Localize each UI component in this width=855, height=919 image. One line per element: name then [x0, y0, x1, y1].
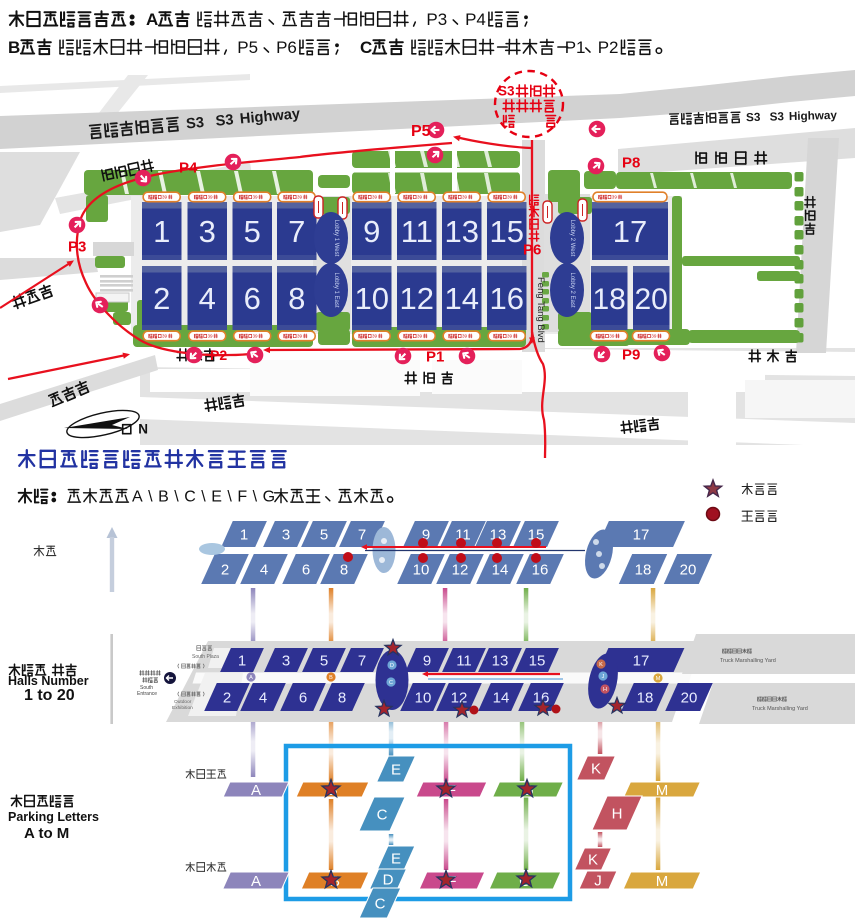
- svg-text:J: J: [602, 674, 605, 680]
- svg-text:10: 10: [413, 561, 430, 578]
- svg-text:39: 39: [297, 334, 303, 339]
- svg-text:P1: P1: [565, 38, 586, 57]
- svg-text:11: 11: [401, 214, 433, 249]
- svg-text:17: 17: [613, 214, 647, 249]
- svg-text:39: 39: [612, 195, 618, 200]
- svg-text:18: 18: [637, 689, 654, 706]
- svg-text:M: M: [656, 782, 669, 799]
- svg-text:Lobby 1 West: Lobby 1 West: [333, 220, 339, 257]
- svg-text:39: 39: [507, 195, 513, 200]
- svg-text:S3: S3: [215, 112, 234, 130]
- svg-text:3: 3: [282, 652, 290, 669]
- svg-text:P3: P3: [68, 238, 86, 255]
- svg-text:18: 18: [635, 561, 652, 578]
- svg-text:P1: P1: [426, 348, 444, 365]
- svg-text:3: 3: [282, 526, 290, 543]
- svg-text:2: 2: [223, 689, 231, 706]
- svg-text:1: 1: [240, 526, 248, 543]
- svg-text:Truck Marshalling Yard: Truck Marshalling Yard: [720, 658, 776, 664]
- svg-text:S3: S3: [746, 111, 761, 124]
- svg-text:Entrance: Entrance: [137, 691, 157, 697]
- svg-text:6: 6: [299, 689, 307, 706]
- svg-text:39: 39: [372, 195, 378, 200]
- svg-text:12: 12: [452, 561, 469, 578]
- svg-text:17: 17: [633, 652, 650, 669]
- svg-text:39: 39: [208, 334, 214, 339]
- svg-text:9: 9: [423, 652, 431, 669]
- svg-text:39: 39: [253, 195, 259, 200]
- svg-text:16: 16: [532, 561, 549, 578]
- svg-text:P8: P8: [622, 154, 640, 171]
- svg-text:39: 39: [372, 334, 378, 339]
- svg-text:S3: S3: [498, 84, 515, 99]
- svg-text:20: 20: [635, 283, 668, 316]
- svg-text:A: A: [146, 10, 158, 29]
- svg-text:B: B: [329, 675, 333, 681]
- svg-text:Parking Letters: Parking Letters: [8, 810, 99, 824]
- svg-text:11: 11: [456, 652, 472, 669]
- svg-text:2: 2: [221, 561, 229, 578]
- svg-text:39: 39: [462, 195, 468, 200]
- svg-text:39: 39: [507, 334, 513, 339]
- svg-text:6: 6: [302, 561, 310, 578]
- svg-text:5: 5: [244, 214, 261, 249]
- svg-text:K: K: [591, 760, 601, 777]
- svg-text:P6: P6: [523, 241, 541, 258]
- svg-text:10: 10: [355, 281, 389, 316]
- svg-text:39: 39: [609, 334, 615, 339]
- svg-text:P4: P4: [179, 159, 198, 176]
- svg-text:D: D: [390, 663, 394, 669]
- svg-text:7: 7: [358, 526, 366, 543]
- svg-text:14: 14: [445, 281, 479, 316]
- svg-text:South Plaza: South Plaza: [192, 654, 219, 660]
- svg-text:15: 15: [529, 652, 546, 669]
- svg-text:39: 39: [417, 195, 423, 200]
- svg-text:E: E: [391, 850, 401, 867]
- svg-text:M: M: [656, 676, 661, 682]
- svg-text:Lobby 1 East: Lobby 1 East: [333, 272, 339, 307]
- svg-text:10: 10: [415, 689, 432, 706]
- svg-text:K: K: [588, 851, 598, 868]
- svg-text:1: 1: [238, 652, 246, 669]
- svg-text:6: 6: [244, 281, 261, 316]
- svg-text:12: 12: [400, 281, 434, 316]
- svg-text:C: C: [389, 680, 393, 686]
- svg-text:A: A: [251, 782, 261, 799]
- svg-text:Truck Marshalling Yard: Truck Marshalling Yard: [752, 706, 808, 712]
- svg-text:Highway: Highway: [789, 109, 838, 123]
- svg-text:8: 8: [340, 561, 348, 578]
- svg-text:39: 39: [417, 334, 423, 339]
- svg-text:K: K: [599, 662, 603, 668]
- svg-text:16: 16: [490, 281, 524, 316]
- svg-text:D: D: [383, 871, 394, 888]
- svg-text:1: 1: [153, 214, 170, 249]
- svg-text:39: 39: [208, 195, 214, 200]
- svg-text:8: 8: [288, 281, 305, 316]
- svg-text:P9: P9: [622, 346, 640, 363]
- svg-text:P4: P4: [465, 10, 486, 29]
- svg-text:P2: P2: [210, 347, 227, 363]
- svg-text:5: 5: [320, 526, 328, 543]
- svg-text:4: 4: [199, 281, 216, 316]
- svg-text:Halls Number: Halls Number: [8, 674, 89, 688]
- svg-text:B: B: [8, 38, 20, 57]
- svg-text:20: 20: [680, 561, 697, 578]
- svg-text:P3: P3: [426, 10, 447, 29]
- svg-text:13: 13: [445, 214, 479, 249]
- svg-text:39: 39: [297, 195, 303, 200]
- svg-text:15: 15: [490, 214, 524, 249]
- svg-text:18: 18: [593, 283, 626, 316]
- svg-text:N: N: [138, 422, 148, 437]
- svg-text:M: M: [656, 873, 669, 890]
- svg-text:Lobby 2 East: Lobby 2 East: [569, 272, 575, 307]
- svg-text:J: J: [594, 872, 602, 889]
- svg-text:S3: S3: [770, 110, 785, 123]
- svg-text:14: 14: [492, 561, 509, 578]
- svg-text:14: 14: [493, 689, 510, 706]
- svg-text:A: A: [249, 675, 253, 681]
- svg-text:Feng Tang Blvd: Feng Tang Blvd: [535, 277, 546, 343]
- svg-text:A: A: [251, 873, 261, 890]
- svg-text:3: 3: [199, 214, 216, 249]
- svg-text:P5: P5: [411, 123, 431, 140]
- svg-text:C: C: [375, 895, 386, 912]
- svg-text:39: 39: [651, 334, 657, 339]
- svg-text:P6: P6: [276, 38, 297, 57]
- svg-text:P5: P5: [237, 38, 258, 57]
- svg-text:4: 4: [260, 561, 268, 578]
- svg-text:12: 12: [451, 689, 468, 706]
- svg-text:P2: P2: [598, 38, 619, 57]
- svg-text:C: C: [360, 38, 372, 57]
- svg-text:Exhibition: Exhibition: [172, 705, 193, 711]
- svg-text:39: 39: [162, 195, 168, 200]
- svg-text:7: 7: [288, 214, 305, 249]
- svg-text:7: 7: [358, 652, 366, 669]
- svg-text:39: 39: [253, 334, 259, 339]
- svg-text:Outdoor: Outdoor: [174, 699, 192, 705]
- svg-text:39: 39: [162, 334, 168, 339]
- svg-text:C: C: [377, 806, 388, 823]
- svg-text:8: 8: [338, 689, 346, 706]
- svg-text:S3: S3: [185, 115, 204, 133]
- svg-text:1 to 20: 1 to 20: [24, 687, 75, 704]
- svg-text:17: 17: [633, 526, 650, 543]
- svg-text:13: 13: [492, 652, 509, 669]
- svg-text:Lobby 2 West: Lobby 2 West: [569, 220, 575, 257]
- svg-text:9: 9: [363, 214, 380, 249]
- svg-text:A\B\C\E\F\G: A\B\C\E\F\G: [132, 489, 281, 506]
- svg-text:5: 5: [320, 652, 328, 669]
- svg-text:2: 2: [153, 281, 170, 316]
- svg-text:20: 20: [681, 689, 698, 706]
- svg-text:E: E: [391, 761, 401, 778]
- svg-text:H: H: [612, 805, 623, 822]
- svg-text:A to M: A to M: [24, 825, 69, 842]
- svg-text:39: 39: [462, 334, 468, 339]
- svg-text:4: 4: [259, 689, 267, 706]
- svg-text:H: H: [603, 687, 607, 693]
